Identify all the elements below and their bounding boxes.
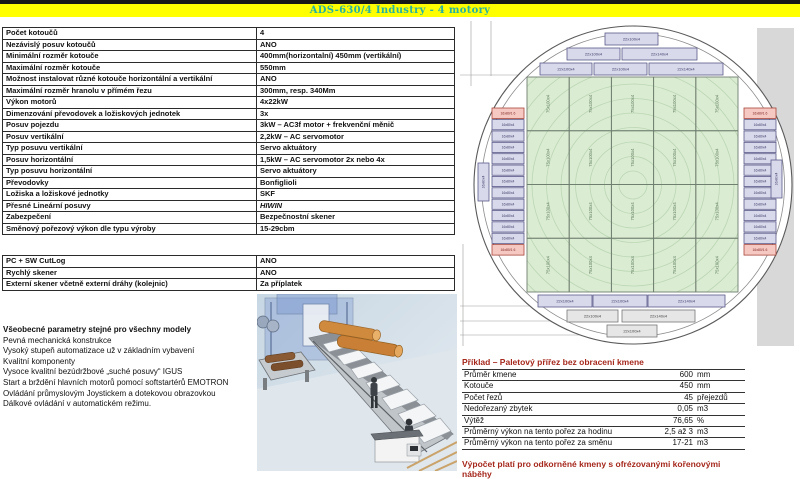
board-label: 16x80x4	[502, 157, 515, 161]
board-label: 16x80x4	[754, 157, 767, 161]
example-table: Průměr kmene600mmKotouče450mmPočet řezů4…	[462, 369, 745, 450]
table-row: Přesné Lineární posuvyHIWIN	[3, 200, 455, 212]
row-label: Nedořezaný zbytek	[462, 404, 643, 415]
board-label: 22x140x4	[678, 298, 696, 303]
table-row: Nezávislý posuv kotoučůANO	[3, 39, 455, 51]
table-row: Posuv pojezdu3kW – AC3f motor + frekvenč…	[3, 120, 455, 132]
lavender-board: 16x80x4	[744, 131, 776, 141]
grey-board: 22x100x4	[567, 310, 618, 322]
table-row: Kotouče450mm	[462, 381, 745, 392]
table-row: Minimální rozměr kotouče400mm(horizontal…	[3, 51, 455, 63]
row-unit: m3	[695, 427, 745, 438]
row-label: Kotouče	[462, 381, 643, 392]
red-board: 16x80/1 6	[492, 108, 524, 119]
table-row: Průměrný výkon na tento pořez za směnu17…	[462, 438, 745, 449]
board-label: 16x80x4	[502, 202, 515, 206]
board-label: 22x100x4	[611, 298, 629, 303]
board-label: 75x100x4	[672, 202, 677, 221]
row-value: 2,2kW – AC servomotor	[257, 131, 455, 143]
row-value: 15-29cbm	[257, 223, 455, 235]
row-label: Přesné Lineární posuvy	[3, 200, 257, 212]
lavender-board: 22x140x4	[622, 48, 697, 60]
table-row: PC + SW CutLogANO	[3, 256, 455, 268]
lavender-board: 16x80x4	[492, 154, 524, 164]
lavender-board: 16x80x4	[492, 233, 524, 243]
table-row: ZabezpečeníBezpečnostní skener	[3, 212, 455, 224]
row-label: Dimenzování převodovek a ložiskových jed…	[3, 108, 257, 120]
row-unit: m3	[695, 404, 745, 415]
board-label: 16x80x4	[502, 191, 515, 195]
lavender-board: 16x80x4	[492, 188, 524, 198]
lavender-board: 22x100x4	[567, 48, 620, 60]
lavender-board: 16x80x4	[492, 131, 524, 141]
row-value: Za příplatek	[257, 279, 455, 291]
board-label: 75x100x4	[588, 255, 593, 274]
lavender-board: 16x80x4	[744, 120, 776, 130]
board-label: 16x80x4	[502, 134, 515, 138]
general-parameter-item: Vysoce kvalitní bezúdržbové „suché posuv…	[3, 367, 255, 378]
log-end-icon	[267, 320, 279, 332]
row-value: 400mm(horizontalní) 450mm (vertikální)	[257, 51, 455, 63]
row-label: Směnový pořezový výkon dle typu výroby	[3, 223, 257, 235]
row-label: Posuv horizontální	[3, 154, 257, 166]
board-label: 75x100x4	[672, 255, 677, 274]
board-label: 16x80x4	[754, 202, 767, 206]
lavender-board: 16x80x4	[492, 176, 524, 186]
row-value: 76,65	[643, 415, 695, 426]
table-row: Ložiska a ložiskové jednotkySKF	[3, 189, 455, 201]
table-row: Posuv vertikální2,2kW – AC servomotor	[3, 131, 455, 143]
board-label: 22x140x4	[677, 66, 695, 71]
example-title: Příklad – Paletový přířez bez obracení k…	[462, 357, 745, 367]
lavender-board: 16x80x4	[492, 120, 524, 130]
general-parameter-item: Vysoký stupeň automatizace už v základní…	[3, 346, 255, 357]
row-value: ANO	[257, 39, 455, 51]
table-row: Externí skener včetně externí dráhy (kol…	[3, 279, 455, 291]
lavender-board: 16x80x4	[744, 142, 776, 152]
row-value: 600	[643, 370, 695, 381]
red-board: 16x80/1 6	[744, 245, 776, 256]
row-value: 3kW – AC3f motor + frekvenční měnič	[257, 120, 455, 132]
lavender-board: 16x80x4	[744, 210, 776, 220]
board-label: 16x80x4	[502, 123, 515, 127]
board-label: 22x100x4	[623, 36, 641, 41]
row-value: 45	[643, 392, 695, 403]
lavender-board: 16x80x4	[744, 222, 776, 232]
row-value: ANO	[257, 267, 455, 279]
board-label: 22x100x4	[612, 66, 630, 71]
row-value: 17-21	[643, 438, 695, 449]
board-label: 16x80x4	[482, 175, 486, 188]
board-label: 22x100x4	[585, 51, 603, 56]
edge-board: 16x80x4	[478, 163, 489, 201]
row-value: 0,05	[643, 404, 695, 415]
board-label: 75x100x4	[546, 148, 551, 167]
board-label: 16x80x4	[754, 180, 767, 184]
row-value: 550mm	[257, 62, 455, 74]
example-note: Výpočet platí pro odkorněné kmeny s ofré…	[462, 459, 745, 479]
table-row: Výkon motorů4x22kW	[3, 97, 455, 109]
grey-board: 22x140x4	[622, 310, 695, 322]
board-label: 16x80x4	[502, 214, 515, 218]
screen-icon	[410, 446, 418, 451]
row-value: Bonfiglioli	[257, 177, 455, 189]
board-label: 75x100x4	[714, 202, 719, 221]
row-value: 4	[257, 28, 455, 40]
grey-board: 22x100x4	[607, 325, 657, 337]
table-row: Typ posuvu vertikálníServo aktuátory	[3, 143, 455, 155]
example-section: Příklad – Paletový přířez bez obracení k…	[462, 357, 745, 479]
lavender-board: 22x140x4	[648, 295, 725, 307]
board-label: 75x100x4	[546, 94, 551, 113]
general-parameter-item: Ovládání průmyslovým Joystickem a doteko…	[3, 389, 255, 400]
board-label: 16x80x4	[754, 237, 767, 241]
row-label: Maximální rozměr hranolu v přímém řezu	[3, 85, 257, 97]
board-label: 16x80x4	[502, 146, 515, 150]
row-value: ANO	[257, 74, 455, 86]
lavender-board: 16x80x4	[492, 210, 524, 220]
board-label: 75x100x4	[588, 202, 593, 221]
board-label: 16x80/1 6	[501, 248, 516, 252]
row-label: Posuv vertikální	[3, 131, 257, 143]
board-label: 16x80/1 6	[753, 111, 768, 115]
table-row: Posuv horizontální1,5kW – AC servomotor …	[3, 154, 455, 166]
row-value: 3x	[257, 108, 455, 120]
table-row: Možnost instalovat různé kotouče horizon…	[3, 74, 455, 86]
board-label: 75x100x4	[630, 202, 635, 221]
table-row: Rychlý skenerANO	[3, 267, 455, 279]
board-label: 22x140x4	[651, 51, 669, 56]
row-label: Průměr kmene	[462, 370, 643, 381]
lavender-board: 22x100x4	[594, 63, 647, 75]
board-label: 16x80/1 6	[501, 111, 516, 115]
general-parameter-item: Pevná mechanická konstrukce	[3, 336, 255, 347]
board-label: 22x100x4	[623, 328, 641, 333]
lavender-board: 16x80x4	[744, 199, 776, 209]
table-row: Typ posuvu horizontálníServo aktuátory	[3, 166, 455, 178]
row-unit: mm	[695, 370, 745, 381]
lavender-board: 16x80x4	[492, 142, 524, 152]
row-label: Externí skener včetně externí dráhy (kol…	[3, 279, 257, 291]
spec-table: Počet kotoučů4Nezávislý posuv kotoučůANO…	[2, 27, 455, 235]
lavender-board: 16x80x4	[492, 165, 524, 175]
example-table-body: Průměr kmene600mmKotouče450mmPočet řezů4…	[462, 370, 745, 450]
red-board: 16x80/1 6	[744, 108, 776, 119]
row-value: Servo aktuátory	[257, 143, 455, 155]
machine-render	[257, 294, 457, 471]
row-value: 1,5kW – AC servomotor 2x nebo 4x	[257, 154, 455, 166]
row-label: Možnost instalovat různé kotouče horizon…	[3, 74, 257, 86]
row-label: Minimální rozměr kotouče	[3, 51, 257, 63]
board-label: 22x100x4	[584, 313, 602, 318]
board-label: 75x100x4	[546, 202, 551, 221]
row-unit: m3	[695, 438, 745, 449]
table-row: Výtěž76,65%	[462, 415, 745, 426]
control-station	[371, 430, 423, 462]
options-table-body: PC + SW CutLogANORychlý skenerANOExterní…	[3, 256, 455, 291]
table-row: Počet kotoučů4	[3, 28, 455, 40]
row-label: Typ posuvu horizontální	[3, 166, 257, 178]
row-label: Průměrný výkon na tento pořez za hodinu	[462, 427, 643, 438]
board-label: 16x80x4	[754, 134, 767, 138]
general-parameter-item: Start a brždění hlavních motorů pomocí s…	[3, 378, 255, 389]
row-label: Počet řezů	[462, 392, 643, 403]
general-parameter-item: Kvalitní komponenty	[3, 357, 255, 368]
board-label: 16x80x4	[502, 168, 515, 172]
board-label: 16x80x4	[502, 225, 515, 229]
options-table: PC + SW CutLogANORychlý skenerANOExterní…	[2, 255, 455, 291]
board-label: 75x100x4	[714, 255, 719, 274]
row-unit: %	[695, 415, 745, 426]
general-parameters-list: Pevná mechanická konstrukceVysoký stupeň…	[3, 336, 255, 410]
table-row: Směnový pořezový výkon dle typu výroby15…	[3, 223, 455, 235]
row-value: Servo aktuátory	[257, 166, 455, 178]
board-label: 75x100x4	[630, 148, 635, 167]
row-value: HIWIN	[257, 200, 455, 212]
row-label: Rychlý skener	[3, 267, 257, 279]
board-label: 16x80x4	[502, 237, 515, 241]
table-row: Průměr kmene600mm	[462, 370, 745, 381]
board-label: 16x80x4	[754, 225, 767, 229]
cutting-diagram: 75x100x475x100x475x100x475x100x475x100x4…	[460, 16, 800, 355]
board-label: 75x100x4	[714, 148, 719, 167]
board-label: 16x80x4	[754, 123, 767, 127]
row-label: Maximální rozměr kotouče	[3, 62, 257, 74]
row-label: PC + SW CutLog	[3, 256, 257, 268]
row-label: Převodovky	[3, 177, 257, 189]
table-row: Dimenzování převodovek a ložiskových jed…	[3, 108, 455, 120]
red-board: 16x80/1 6	[492, 245, 524, 256]
board-label: 75x100x4	[546, 255, 551, 274]
board-label: 16x80x4	[775, 172, 779, 185]
board-label: 75x100x4	[588, 148, 593, 167]
board-label: 22x140x4	[650, 313, 668, 318]
lavender-board: 16x80x4	[492, 199, 524, 209]
lavender-board: 22x100x4	[538, 295, 592, 307]
board-label: 16x80x4	[502, 180, 515, 184]
board-label: 16x80x4	[754, 191, 767, 195]
lavender-board: 22x100x4	[593, 295, 647, 307]
row-value: 2,5 až 3	[643, 427, 695, 438]
page-title: ADS-630/4 Industry - 4 motory	[310, 5, 491, 16]
table-row: Počet řezů45přejezdů	[462, 392, 745, 403]
board-label: 16x80x4	[754, 168, 767, 172]
table-row: Nedořezaný zbytek0,05m3	[462, 404, 745, 415]
row-value: SKF	[257, 189, 455, 201]
lavender-board: 22x140x4	[649, 63, 723, 75]
board-label: 16x80x4	[754, 146, 767, 150]
spec-table-body: Počet kotoučů4Nezávislý posuv kotoučůANO…	[3, 28, 455, 235]
general-parameter-item: Dálkové ovládání v automatickém režimu.	[3, 399, 255, 410]
row-unit: mm	[695, 381, 745, 392]
lavender-board: 16x80x4	[744, 233, 776, 243]
row-label: Výkon motorů	[3, 97, 257, 109]
row-label: Zabezpečení	[3, 212, 257, 224]
table-row: Maximální rozměr kotouče550mm	[3, 62, 455, 74]
table-row: PřevodovkyBonfiglioli	[3, 177, 455, 189]
row-label: Typ posuvu vertikální	[3, 143, 257, 155]
row-value: ANO	[257, 256, 455, 268]
row-value: Bezpečnostní skener	[257, 212, 455, 224]
general-parameters: Všeobecné parametry stejné pro všechny m…	[3, 325, 255, 410]
edge-board: 16x80x4	[771, 160, 782, 198]
board-label: 75x100x4	[630, 94, 635, 113]
row-label: Počet kotoučů	[3, 28, 257, 40]
board-label: 16x80/1 6	[753, 248, 768, 252]
lavender-board: 16x80x4	[492, 222, 524, 232]
row-label: Průměrný výkon na tento pořez za směnu	[462, 438, 643, 449]
board-label: 75x100x4	[714, 94, 719, 113]
board-label: 75x100x4	[672, 148, 677, 167]
board-label: 75x100x4	[630, 255, 635, 274]
board-label: 22x100x4	[557, 66, 575, 71]
row-label: Posuv pojezdu	[3, 120, 257, 132]
board-label: 75x100x4	[672, 94, 677, 113]
row-unit: přejezdů	[695, 392, 745, 403]
row-value: 300mm, resp. 340Mm	[257, 85, 455, 97]
row-label: Nezávislý posuv kotoučů	[3, 39, 257, 51]
row-label: Ložiska a ložiskové jednotky	[3, 189, 257, 201]
general-parameters-heading: Všeobecné parametry stejné pro všechny m…	[3, 325, 255, 336]
row-label: Výtěž	[462, 415, 643, 426]
board-label: 16x80x4	[754, 214, 767, 218]
board-label: 75x100x4	[588, 94, 593, 113]
board-label: 22x100x4	[556, 298, 574, 303]
table-row: Maximální rozměr hranolu v přímém řezu30…	[3, 85, 455, 97]
table-row: Průměrný výkon na tento pořez za hodinu2…	[462, 427, 745, 438]
lavender-board: 22x100x4	[540, 63, 592, 75]
row-value: 450	[643, 381, 695, 392]
row-value: 4x22kW	[257, 97, 455, 109]
lavender-board: 22x100x4	[605, 33, 658, 45]
